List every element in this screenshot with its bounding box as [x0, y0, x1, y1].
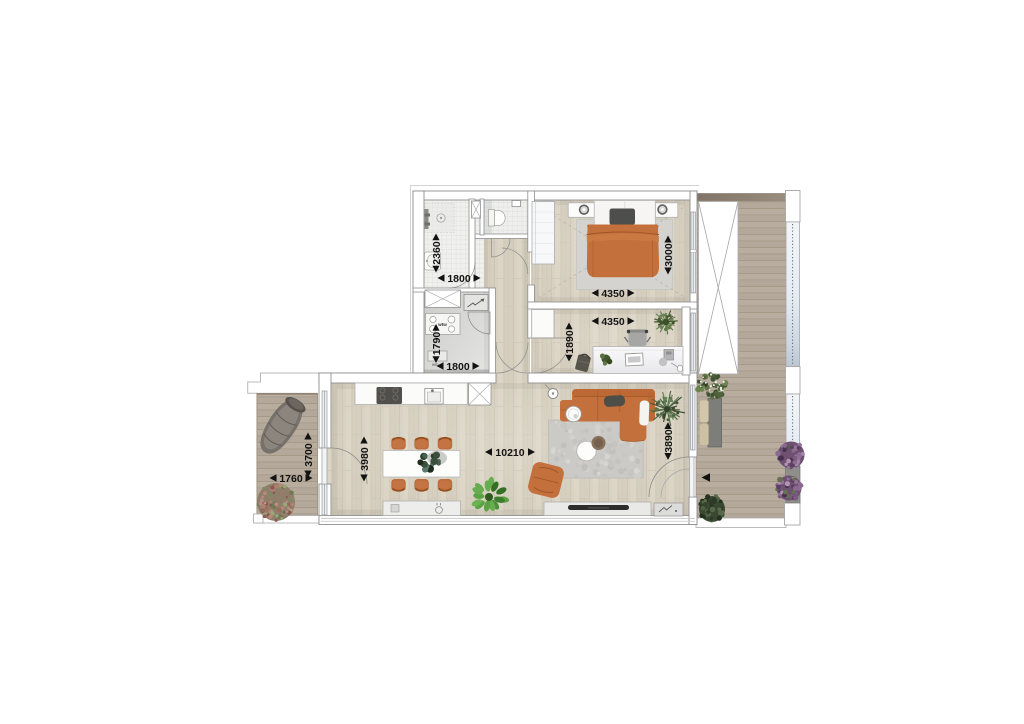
svg-text:3890: 3890: [663, 429, 675, 453]
svg-text:1890: 1890: [564, 330, 576, 354]
svg-text:4350: 4350: [601, 288, 625, 300]
svg-text:1800: 1800: [447, 273, 471, 285]
svg-text:4350: 4350: [601, 316, 625, 328]
svg-text:1800: 1800: [446, 361, 470, 373]
svg-text:10210: 10210: [495, 447, 524, 459]
svg-text:1760: 1760: [279, 473, 303, 485]
svg-text:1790: 1790: [431, 332, 443, 356]
svg-text:3000: 3000: [663, 243, 675, 267]
svg-text:3980: 3980: [359, 447, 371, 471]
svg-text:3700: 3700: [303, 443, 315, 467]
svg-text:2360: 2360: [431, 241, 443, 265]
svg-text:wtw: wtw: [437, 322, 447, 327]
